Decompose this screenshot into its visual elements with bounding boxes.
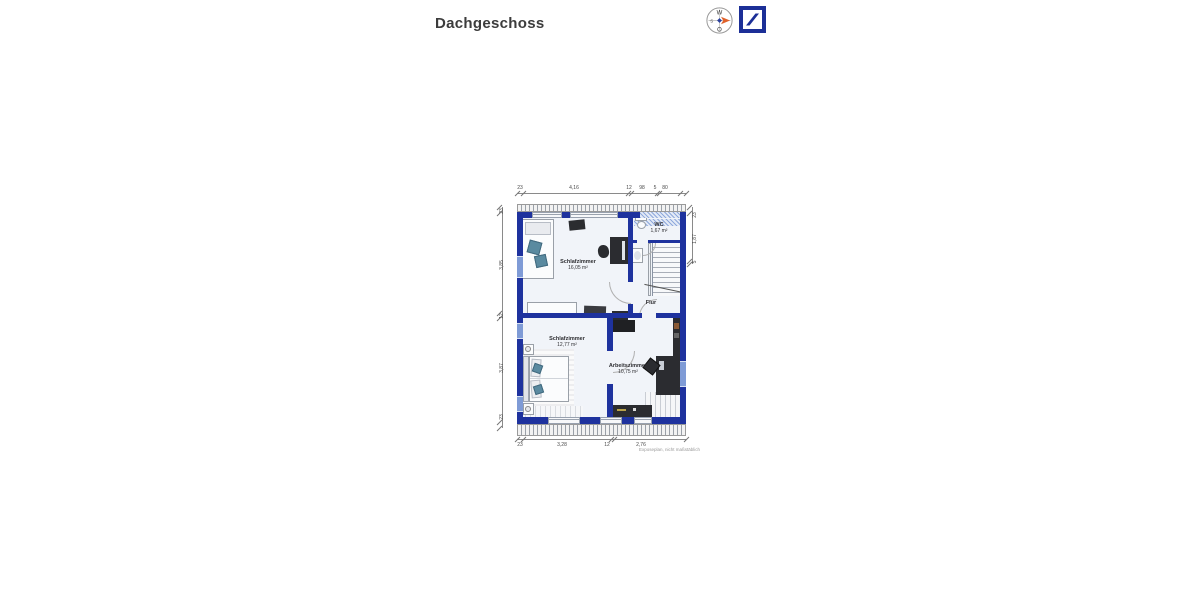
wall-hall-b bbox=[656, 313, 680, 318]
dim-top-0: 23 bbox=[512, 185, 528, 191]
room-label-hall: Flur bbox=[635, 300, 667, 306]
window-left-1 bbox=[517, 256, 523, 278]
page-title: Dachgeschoss bbox=[435, 15, 544, 32]
plan-footnote: Exposeplan, nicht maßstäblich bbox=[598, 447, 700, 452]
tick bbox=[684, 191, 690, 197]
tv-unit bbox=[569, 219, 586, 231]
dim-top-1: 4,16 bbox=[558, 185, 590, 191]
room-label-bedroom-1: Schlafzimmer 16,05 m² bbox=[543, 259, 613, 271]
wall-right bbox=[680, 212, 686, 424]
window-right-1 bbox=[680, 361, 686, 387]
dim-right-2: 5 bbox=[692, 247, 698, 277]
roof-window-top bbox=[640, 212, 680, 218]
desk-1-monitor bbox=[622, 241, 625, 260]
window-bottom-1 bbox=[548, 417, 580, 424]
roof-hatch-bottom bbox=[517, 424, 686, 436]
compass-icon: W S O bbox=[705, 6, 734, 35]
dim-left-4: 23 bbox=[499, 402, 505, 432]
dim-line-bottom bbox=[517, 439, 686, 440]
wall-interior-v2a bbox=[607, 318, 613, 351]
dim-bottom-0: 23 bbox=[512, 442, 528, 448]
wall-hall-a bbox=[633, 313, 642, 318]
window-bottom-2 bbox=[600, 417, 622, 424]
dim-top-3: 98 bbox=[634, 185, 650, 191]
wall-interior-h bbox=[517, 313, 633, 318]
dim-left-0: 23 bbox=[499, 196, 505, 226]
window-left-2 bbox=[517, 323, 523, 339]
room-label-wc: WC 1,67 m² bbox=[641, 222, 677, 234]
dim-left-2: 12 bbox=[499, 301, 505, 331]
wall-left bbox=[517, 212, 523, 424]
logo-slash-icon bbox=[743, 10, 762, 29]
dim-left-1: 3,85 bbox=[499, 250, 505, 280]
lamp-2 bbox=[525, 406, 531, 412]
lowboard bbox=[610, 405, 652, 417]
window-top-1 bbox=[532, 212, 562, 218]
window-top-2 bbox=[570, 212, 618, 218]
wall-interior-v1 bbox=[628, 218, 633, 282]
room-label-office: Arbeitszimmer 10,75 m² bbox=[593, 363, 663, 375]
washbasin-bowl bbox=[634, 251, 641, 260]
lamp-1 bbox=[525, 346, 531, 352]
window-left-3 bbox=[517, 396, 523, 412]
roof-hatch-top bbox=[517, 204, 686, 212]
room-label-bedroom-2: Schlafzimmer 12,77 m² bbox=[532, 336, 602, 348]
shelf-item-1 bbox=[674, 323, 679, 329]
wall-interior-v2b bbox=[607, 384, 613, 417]
compass-letter-w: W bbox=[717, 11, 723, 17]
dim-bottom-1: 3,28 bbox=[546, 442, 578, 448]
hall-sideboard bbox=[611, 320, 635, 332]
compass-letter-s: S bbox=[710, 19, 713, 24]
lowboard-item-1 bbox=[617, 409, 626, 411]
bed-2-split bbox=[530, 378, 568, 379]
compass-letter-o: O bbox=[717, 28, 722, 34]
floorplan-page: Dachgeschoss W S O bbox=[0, 0, 1200, 600]
dim-line-top bbox=[517, 193, 686, 194]
shelf-item-2 bbox=[674, 333, 679, 338]
company-logo bbox=[739, 6, 766, 33]
window-bottom-3 bbox=[634, 417, 652, 424]
dim-top-5: 80 bbox=[657, 185, 673, 191]
tick bbox=[684, 437, 690, 443]
bed-1-pillow bbox=[525, 222, 551, 235]
wc-door-gap bbox=[637, 240, 648, 243]
dim-left-3: 3,87 bbox=[499, 353, 505, 383]
lowboard-item-2 bbox=[633, 408, 636, 411]
